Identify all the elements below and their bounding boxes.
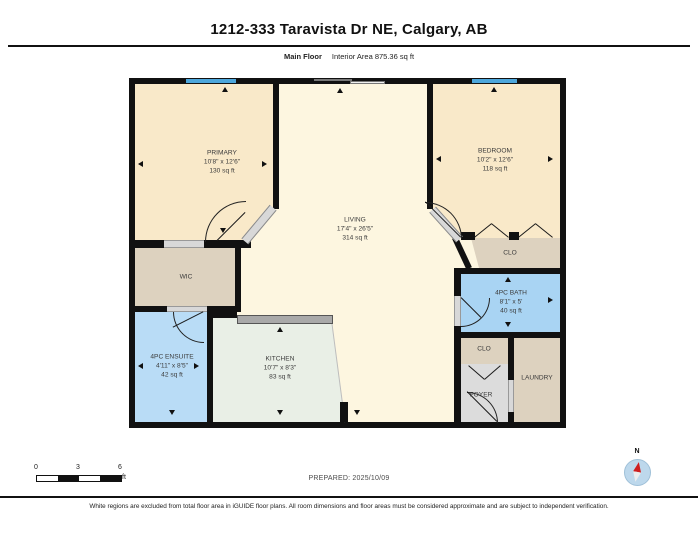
dim-arrow-icon	[337, 88, 343, 93]
compass-north-label: N	[629, 448, 645, 455]
room-name: CLO	[477, 346, 491, 355]
room-area: 83 sq ft	[264, 373, 297, 382]
room-name: FOYER	[470, 392, 493, 401]
dim-arrow-icon	[277, 327, 283, 332]
footer-rule	[0, 496, 698, 498]
room-name: BEDROOM	[477, 148, 513, 157]
room-label-kitchen: KITCHEN 10'7" x 8'3" 83 sq ft	[264, 356, 297, 383]
room-dims: 10'2" x 12'6"	[477, 157, 513, 166]
wall	[427, 84, 433, 209]
wall	[273, 84, 279, 209]
room-name: CLO	[503, 250, 517, 259]
room-label-foyer: FOYER	[470, 392, 493, 401]
interior-area-label: Interior Area 875.36 sq ft	[332, 52, 414, 61]
scale-tick-6: 6	[114, 464, 126, 471]
room-label-laundry: LAUNDRY	[521, 375, 552, 384]
sliding-door-panel	[350, 81, 385, 84]
room-name: PRIMARY	[204, 150, 240, 159]
room-name: 4PC BATH	[495, 290, 527, 299]
room-label-closet-bedroom: CLO	[503, 250, 517, 259]
room-dims: 10'8" x 12'6"	[204, 159, 240, 168]
room-label-living: LIVING 17'4" x 26'5" 314 sq ft	[337, 217, 373, 244]
page-title: 1212-333 Taravista Dr NE, Calgary, AB	[0, 21, 698, 38]
scale-segment	[37, 476, 58, 481]
room-label-bath: 4PC BATH 8'1" x 5' 40 sq ft	[495, 290, 527, 317]
room-name: KITCHEN	[264, 356, 297, 365]
compass-icon	[624, 459, 651, 486]
wall	[340, 402, 348, 422]
dim-arrow-icon	[505, 277, 511, 282]
room-area: 40 sq ft	[495, 307, 527, 316]
dim-arrow-icon	[138, 161, 143, 167]
room-label-wic: WIC	[180, 274, 193, 283]
dim-arrow-icon	[548, 156, 553, 162]
scale-segment	[100, 476, 121, 481]
wall	[207, 312, 213, 422]
room-label-bedroom: BEDROOM 10'2" x 12'6" 118 sq ft	[477, 148, 513, 175]
header-rule	[8, 45, 690, 47]
compass-needle-south	[631, 471, 641, 482]
wall	[213, 308, 237, 318]
dim-arrow-icon	[220, 228, 226, 233]
compass-needle-icon	[623, 458, 652, 487]
room-name: LAUNDRY	[521, 375, 552, 384]
dim-arrow-icon	[194, 363, 199, 369]
room-name: WIC	[180, 274, 193, 283]
room-name: 4PC ENSUITE	[150, 354, 193, 363]
dim-arrow-icon	[262, 161, 267, 167]
scale-bar	[36, 475, 122, 482]
room-name: LIVING	[337, 217, 373, 226]
room-area: 130 sq ft	[204, 167, 240, 176]
floor-plan: PRIMARY 10'8" x 12'6" 130 sq ft BEDROOM …	[129, 78, 566, 428]
dim-arrow-icon	[277, 410, 283, 415]
dim-arrow-icon	[354, 410, 360, 415]
dim-arrow-icon	[548, 297, 553, 303]
floor-subtitle: Main FloorInterior Area 875.36 sq ft	[0, 52, 698, 61]
room-label-primary: PRIMARY 10'8" x 12'6" 130 sq ft	[204, 150, 240, 177]
laundry-door-opening	[508, 380, 514, 412]
kitchen-counter	[237, 315, 333, 324]
wall	[454, 332, 560, 338]
room-area: 118 sq ft	[477, 165, 513, 174]
bath-door-opening	[454, 296, 461, 326]
room-area: 42 sq ft	[150, 371, 193, 380]
scale-tick-0: 0	[30, 464, 42, 471]
wall	[235, 248, 241, 312]
dim-arrow-icon	[222, 87, 228, 92]
scale-tick-3: 3	[72, 464, 84, 471]
floor-plan-page: 1212-333 Taravista Dr NE, Calgary, AB Ma…	[0, 0, 698, 540]
room-dims: 17'4" x 26'5"	[337, 226, 373, 235]
room-dims: 8'1" x 5'	[495, 299, 527, 308]
window-primary	[186, 78, 236, 84]
room-area: 314 sq ft	[337, 234, 373, 243]
sliding-door-panel	[314, 79, 352, 82]
dim-arrow-icon	[505, 322, 511, 327]
scale-segment	[79, 476, 100, 481]
wall	[454, 268, 560, 274]
room-label-closet-foyer: CLO	[477, 346, 491, 355]
dim-arrow-icon	[491, 87, 497, 92]
dim-arrow-icon	[436, 156, 441, 162]
room-dims: 4'11" x 8'5"	[150, 363, 193, 372]
disclaimer-text: White regions are excluded from total fl…	[0, 503, 698, 510]
window-bedroom	[472, 78, 517, 84]
wall	[135, 240, 164, 248]
room-label-ensuite: 4PC ENSUITE 4'11" x 8'5" 42 sq ft	[150, 354, 193, 381]
room-dims: 10'7" x 8'3"	[264, 365, 297, 374]
floor-label: Main Floor	[284, 52, 322, 61]
scale-segment	[58, 476, 79, 481]
dim-arrow-icon	[169, 410, 175, 415]
primary-wic-opening	[164, 240, 204, 248]
dim-arrow-icon	[138, 363, 143, 369]
